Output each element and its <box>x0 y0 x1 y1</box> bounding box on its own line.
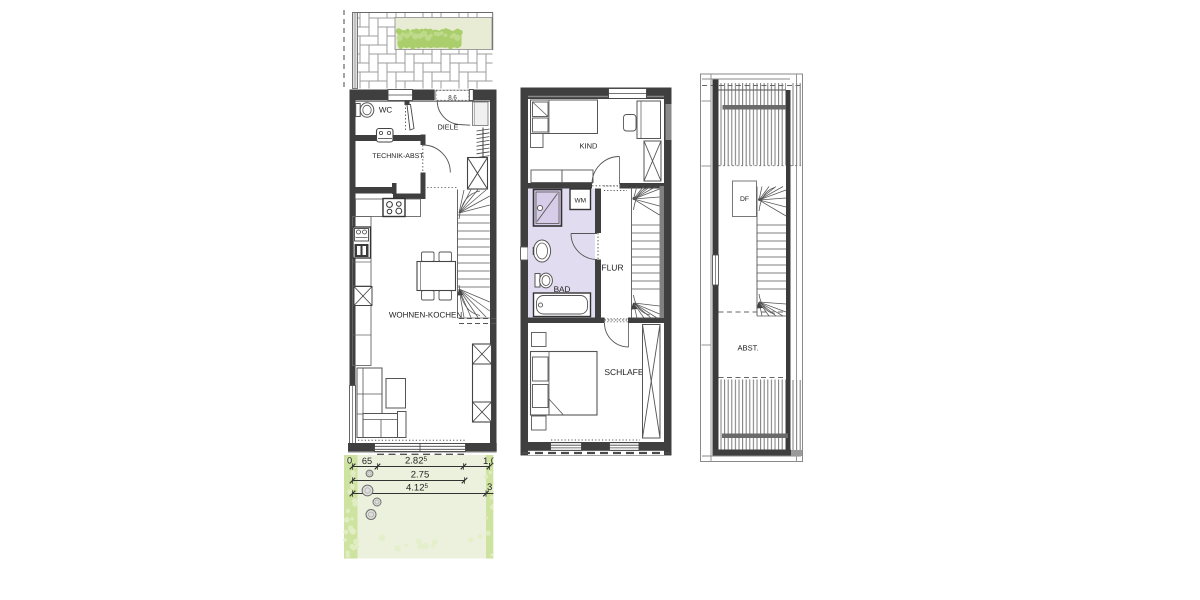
svg-text:2.75: 2.75 <box>411 470 430 481</box>
svg-text:3: 3 <box>487 482 492 493</box>
svg-text:ABST.: ABST. <box>737 344 758 353</box>
svg-text:KIND: KIND <box>580 142 599 151</box>
svg-text:65: 65 <box>362 456 372 466</box>
svg-text:WOHNEN-KOCHEN: WOHNEN-KOCHEN <box>389 311 463 320</box>
svg-text:DF: DF <box>740 196 749 203</box>
svg-text:0: 0 <box>347 456 352 466</box>
svg-text:WM: WM <box>575 198 587 205</box>
svg-text:TECHNIK-ABST.: TECHNIK-ABST. <box>372 153 425 160</box>
svg-text:WC: WC <box>379 106 393 115</box>
svg-text:BAD: BAD <box>554 285 571 294</box>
svg-text:8.6: 8.6 <box>448 94 457 101</box>
svg-text:DIELE: DIELE <box>438 123 459 132</box>
svg-text:FLUR: FLUR <box>601 263 623 273</box>
